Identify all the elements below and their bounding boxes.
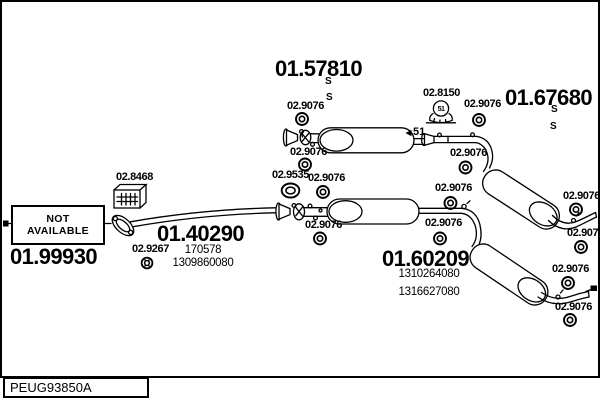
ring-small-label: 02.9267 (132, 244, 169, 255)
gasket-ring-icon (460, 162, 472, 174)
gasket-ring-label: 02.9076 (308, 173, 345, 184)
gasket-ring-label: 02.9076 (287, 101, 324, 112)
gasket-ring-icon (314, 233, 326, 245)
s-mark: S (326, 93, 333, 103)
gasket-ring-label: 02.9076 (425, 218, 462, 229)
s-mark: S (551, 105, 558, 115)
gasket-ring-icon (562, 277, 574, 289)
s-mark: S (550, 122, 557, 132)
gasket-ring-label: 02.9076 (464, 99, 501, 110)
top-inlet-flange (283, 129, 318, 146)
not-available-line1: NOT (46, 214, 69, 225)
gasket-ring-label: 02.9076 (435, 183, 472, 194)
gasket-ring-label: 02.9076 (290, 147, 327, 158)
gasket-ring-icon (473, 114, 485, 126)
gasket-ring-label: 02.9076 (555, 302, 592, 313)
gasket-ring-label: 02.9076 (567, 228, 600, 239)
not-available-line2: AVAILABLE (27, 226, 89, 237)
gasket-ring-label: 02.9076 (450, 148, 487, 159)
gasket-ring-label: 02.9076 (563, 191, 600, 202)
part-number-silencer-rear-bottom: 01.60209 (382, 248, 469, 270)
oe-ref: 1309860080 (160, 258, 246, 270)
part-number-front-pipe: 01.40290 (157, 223, 244, 245)
parts-diagram-page: 01.57810 01.67680 01.99930 01.40290 01.6… (0, 0, 600, 400)
s-mark: S (325, 77, 332, 87)
mid-silencer-inlet (276, 203, 328, 220)
part-number-silencer-rear-top: 01.67680 (505, 87, 592, 109)
clamp-label: 02.8150 (423, 88, 460, 99)
gasket-ring-icon (575, 241, 587, 253)
gasket-ring-icon (570, 204, 582, 216)
oe-ref: 170578 (160, 245, 246, 257)
clamp-size-in-icon: 51 (435, 106, 447, 113)
drawing-code-box: PEUG93850A (3, 378, 149, 398)
seal-ring-large-icon (282, 184, 300, 198)
not-available-box: NOT AVAILABLE (11, 205, 105, 245)
gasket-ring-label: 02.9076 (305, 220, 342, 231)
oe-ref: 1310264080 (386, 269, 472, 281)
gasket-ring-icon (564, 314, 576, 326)
muffler-rear-bottom (465, 239, 552, 310)
part-number-unavailable: 01.99930 (10, 246, 97, 268)
gasket-ring-icon (296, 113, 308, 125)
seal-ring-large-label: 02.9535 (272, 170, 309, 181)
heat-shield-label: 02.8468 (116, 172, 153, 183)
gasket-ring-icon (445, 197, 457, 209)
ring-small-icon (142, 258, 153, 269)
clamp-size-ref: 51 (413, 127, 425, 138)
drawing-code: PEUG93850A (10, 380, 92, 395)
oe-ref: 1316627080 (386, 287, 472, 299)
diagram-canvas: 01.57810 01.67680 01.99930 01.40290 01.6… (0, 0, 600, 378)
gasket-ring-icon (434, 233, 446, 245)
gasket-ring-label: 02.9076 (552, 264, 589, 275)
heat-shield-icon (114, 185, 146, 209)
gasket-ring-icon (317, 186, 329, 198)
part-number-silencer-middle-top: 01.57810 (275, 58, 362, 80)
